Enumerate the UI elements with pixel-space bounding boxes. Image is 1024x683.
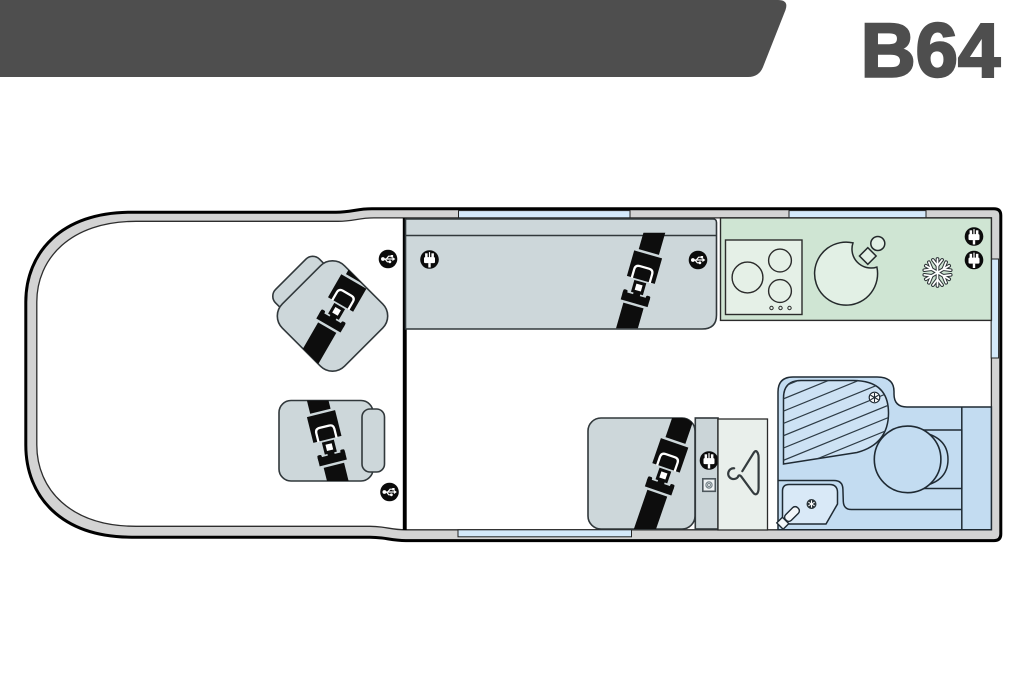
svg-text:B64: B64: [861, 9, 1000, 94]
